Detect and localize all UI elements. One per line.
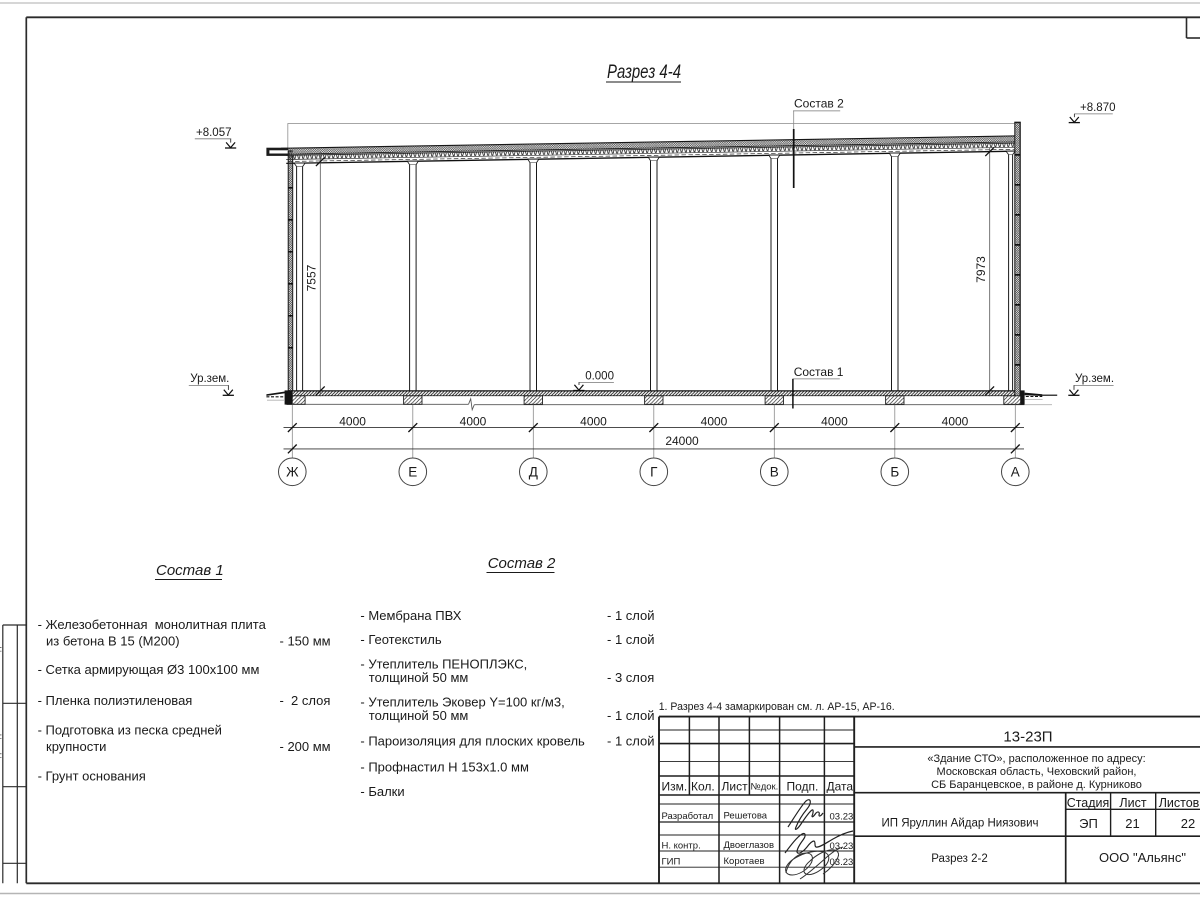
svg-text:Подп.: Подп. [787, 780, 819, 794]
svg-text:крупности: крупности [46, 739, 106, 754]
svg-text:№док.: №док. [751, 782, 779, 793]
svg-text:22: 22 [1181, 816, 1195, 831]
svg-text:+8.057: +8.057 [196, 127, 232, 139]
svg-text:Кол.: Кол. [691, 780, 715, 794]
svg-text:Стадия: Стадия [1067, 796, 1110, 810]
svg-text:- Мембрана ПВХ: - Мембрана ПВХ [360, 608, 461, 623]
svg-text:- 1 слой: - 1 слой [607, 608, 655, 623]
svg-text:- Балки: - Балки [360, 784, 404, 799]
svg-text:- Подготовка из песка средней: - Подготовка из песка средней [38, 723, 222, 738]
svg-text:Взам. инв. №: Взам. инв. № [0, 802, 2, 848]
svg-text:03.23: 03.23 [830, 812, 854, 823]
svg-text:Н. контр.: Н. контр. [662, 840, 701, 851]
svg-text:- Пленка полиэтиленовая: - Пленка полиэтиленовая [38, 693, 193, 708]
svg-text:Ж: Ж [286, 465, 299, 480]
svg-text:- 3 слоя: - 3 слоя [607, 670, 654, 685]
svg-text:СБ Баранцевское, в районе д. К: СБ Баранцевское, в районе д. Курниково [931, 779, 1142, 791]
svg-text:Ур.зем.: Ур.зем. [1075, 373, 1114, 385]
svg-text:Е: Е [408, 465, 417, 480]
svg-text:ГИП: ГИП [662, 856, 681, 867]
svg-text:4000: 4000 [821, 414, 848, 428]
svg-text:Б: Б [890, 465, 899, 480]
svg-text:- Сетка армирующая Ø3 100х100: - Сетка армирующая Ø3 100х100 мм [38, 662, 260, 677]
svg-text:0.000: 0.000 [585, 371, 614, 383]
svg-text:7557: 7557 [305, 264, 319, 291]
svg-text:ООО "Альянс": ООО "Альянс" [1099, 850, 1186, 865]
svg-text:Состав 1: Состав 1 [156, 562, 224, 579]
svg-text:- Профнастил Н 153х1.0 мм: - Профнастил Н 153х1.0 мм [360, 760, 529, 775]
svg-text:7973: 7973 [974, 256, 988, 283]
svg-text:21: 21 [1125, 816, 1139, 831]
svg-text:Инв. № подл.: Инв. № подл. [0, 641, 2, 688]
svg-text:Г: Г [650, 465, 658, 480]
svg-text:- 1 слой: - 1 слой [607, 632, 655, 647]
svg-text:- Грунт основания: - Грунт основания [38, 769, 146, 784]
svg-text:Состав 1: Состав 1 [794, 365, 844, 379]
svg-text:толщиной 50 мм: толщиной 50 мм [369, 670, 469, 685]
svg-text:Ур.зем.: Ур.зем. [190, 373, 229, 385]
svg-text:13-23П: 13-23П [1003, 729, 1052, 746]
svg-text:Лист: Лист [722, 780, 749, 794]
svg-text:Дата: Дата [827, 780, 854, 794]
svg-text:24000: 24000 [665, 434, 699, 448]
svg-text:4000: 4000 [580, 414, 607, 428]
svg-text:ИП Яруллин Айдар Ниязович: ИП Яруллин Айдар Ниязович [882, 818, 1039, 830]
svg-text:- Геотекстиль: - Геотекстиль [360, 632, 441, 647]
svg-text:- 2 слоя: - 2 слоя [280, 693, 331, 708]
svg-text:4000: 4000 [339, 414, 366, 428]
svg-text:Разрез 2-2: Разрез 2-2 [931, 853, 987, 865]
svg-text:- Железобетонная монолитная п: - Железобетонная монолитная плита [38, 617, 267, 632]
svg-text:ЭП: ЭП [1079, 816, 1098, 831]
svg-text:Состав 2: Состав 2 [794, 97, 844, 111]
svg-text:- 150 мм: - 150 мм [280, 633, 331, 648]
svg-text:03.23: 03.23 [830, 857, 854, 868]
svg-text:Решетова: Решетова [724, 811, 768, 822]
svg-text:Московская область, Чеховский: Московская область, Чеховский район, [937, 766, 1137, 778]
svg-text:03.23: 03.23 [830, 841, 854, 852]
svg-text:Листов: Листов [1159, 796, 1200, 810]
svg-text:Лист: Лист [1119, 796, 1146, 810]
svg-text:Состав 2: Состав 2 [488, 555, 556, 572]
svg-text:- 1 слой: - 1 слой [607, 734, 655, 749]
svg-text:Д: Д [529, 465, 538, 480]
svg-text:- 1 слой: - 1 слой [607, 708, 655, 723]
svg-text:- 200 мм: - 200 мм [280, 739, 331, 754]
svg-text:из бетона В 15 (М200): из бетона В 15 (М200) [46, 633, 180, 648]
svg-text:«Здание СТО», расположенное по: «Здание СТО», расположенное по адресу: [927, 753, 1145, 765]
svg-text:Разработал: Разработал [662, 811, 714, 822]
svg-text:В: В [770, 465, 779, 480]
svg-text:А: А [1011, 465, 1020, 480]
svg-text:4000: 4000 [460, 414, 487, 428]
svg-text:толщиной 50 мм: толщиной 50 мм [369, 708, 469, 723]
svg-text:4000: 4000 [942, 414, 969, 428]
svg-text:Двоеглазов: Двоеглазов [724, 840, 775, 851]
svg-text:1. Разрез 4-4 замаркирован см.: 1. Разрез 4-4 замаркирован см. л. АР-15,… [659, 701, 895, 713]
svg-text:Подп. и дата: Подп. и дата [0, 722, 2, 767]
svg-text:Изм.: Изм. [662, 780, 688, 794]
svg-text:+8.870: +8.870 [1080, 102, 1116, 114]
svg-text:- Пароизоляция для плоских кро: - Пароизоляция для плоских кровель [360, 734, 585, 749]
svg-text:4000: 4000 [701, 414, 728, 428]
svg-text:Коротаев: Коротаев [724, 856, 765, 867]
svg-text:Разрез 4-4: Разрез 4-4 [607, 61, 681, 83]
